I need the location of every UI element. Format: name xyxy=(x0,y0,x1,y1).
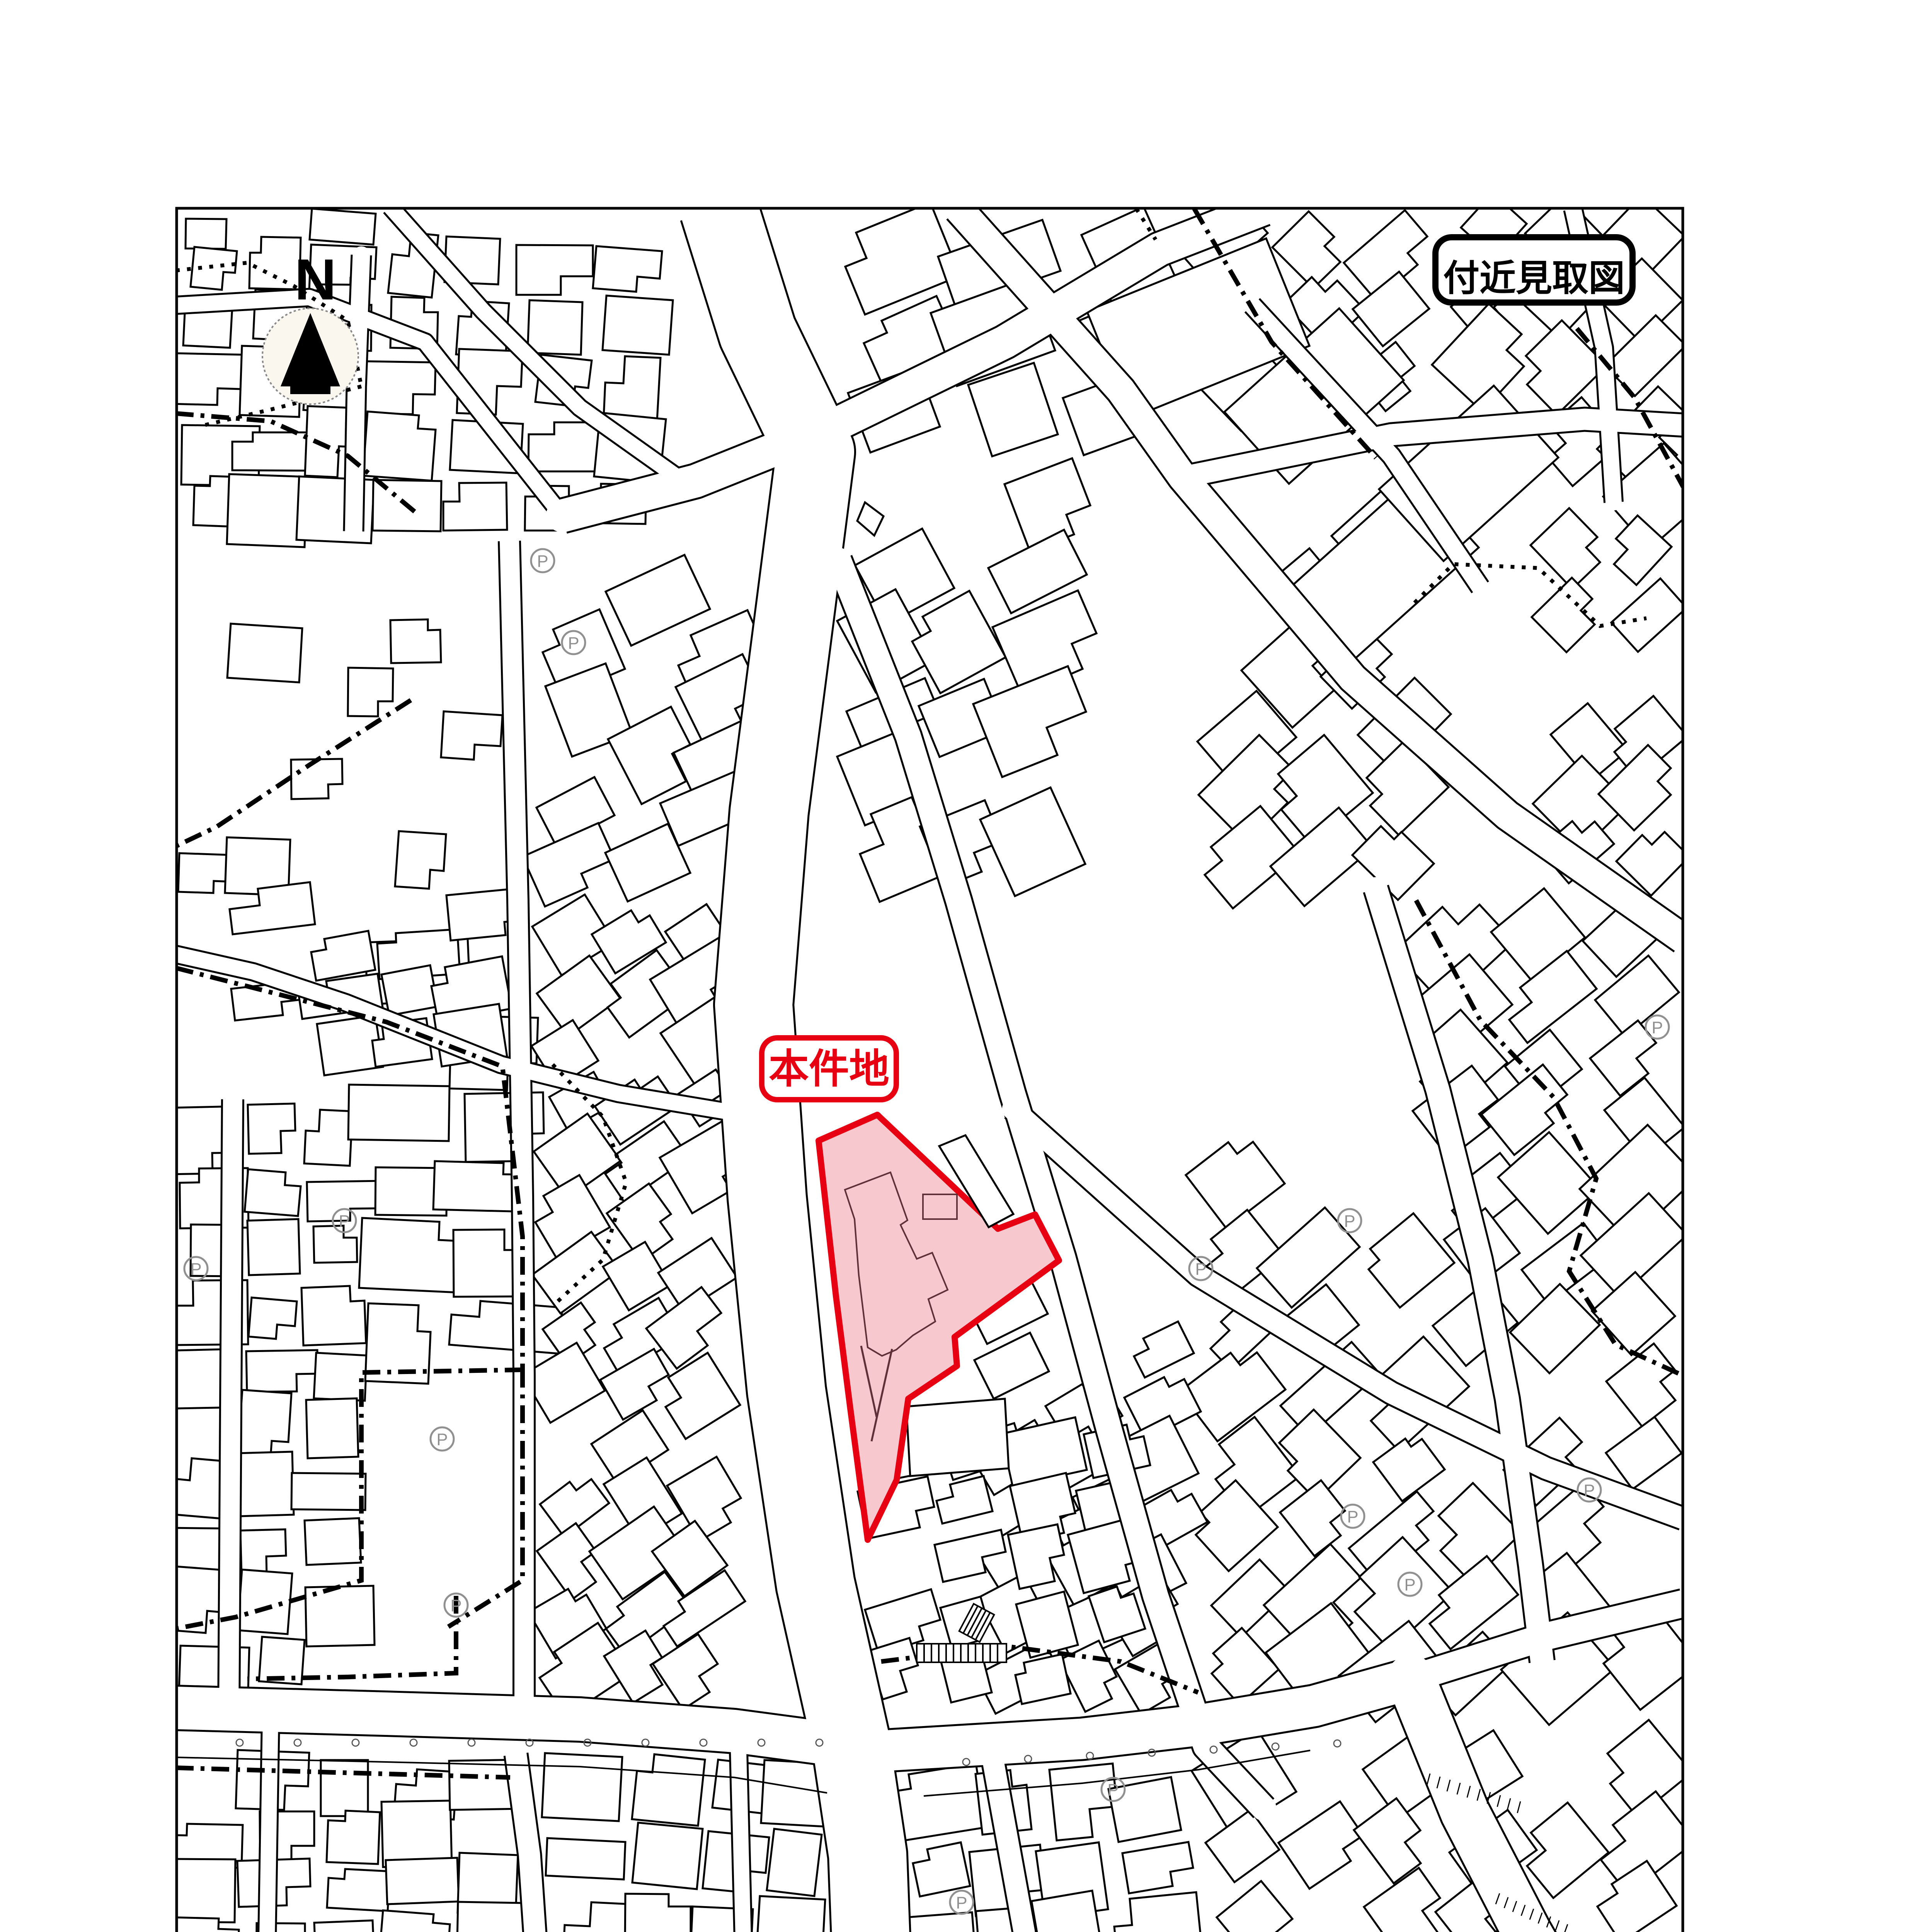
svg-text:P: P xyxy=(1107,1781,1119,1799)
svg-text:P: P xyxy=(1583,1481,1595,1500)
svg-text:P: P xyxy=(450,1596,461,1615)
svg-text:P: P xyxy=(1651,1018,1663,1037)
svg-text:本件地: 本件地 xyxy=(769,1047,889,1092)
svg-text:P: P xyxy=(190,1260,201,1279)
svg-text:P: P xyxy=(1347,1507,1358,1526)
svg-text:P: P xyxy=(436,1430,448,1449)
svg-text:P: P xyxy=(537,552,548,571)
svg-text:P: P xyxy=(1195,1260,1206,1279)
svg-text:付近見取図: 付近見取図 xyxy=(1443,258,1625,298)
svg-text:P: P xyxy=(1344,1212,1355,1231)
svg-text:P: P xyxy=(339,1212,350,1231)
svg-text:P: P xyxy=(1404,1575,1415,1594)
svg-text:P: P xyxy=(956,1893,967,1912)
svg-text:P: P xyxy=(568,634,579,653)
svg-text:N: N xyxy=(295,247,336,312)
